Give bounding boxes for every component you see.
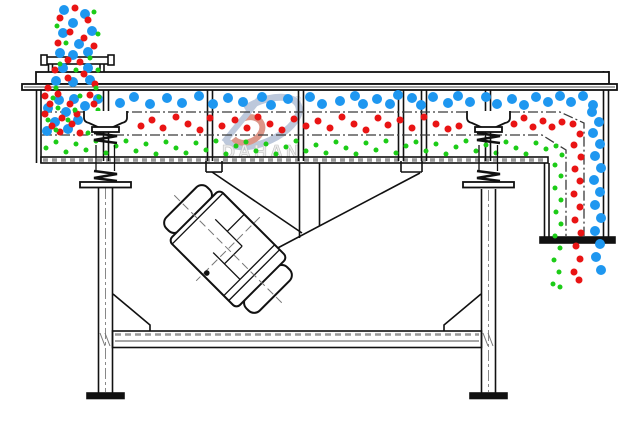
motor-strut-right [272,173,420,251]
top-cover [22,72,617,90]
top-deck-blue [115,90,598,110]
particles-layer [42,5,607,290]
screen-box [37,71,609,242]
gusset-left [113,294,150,331]
foot-right [470,393,507,399]
vibrating-screen-diagram: ® DAHAN [0,0,638,428]
support-leg-right [470,189,507,399]
vibration-motor [142,163,315,336]
discharge-red [570,121,585,284]
spring-mount-right [463,111,514,188]
cover-plate [36,72,609,84]
gusset-right [444,294,481,331]
support-leg-left [87,187,124,399]
discharge-green [551,144,565,290]
foot-left [87,393,124,399]
support-frame [87,187,507,399]
